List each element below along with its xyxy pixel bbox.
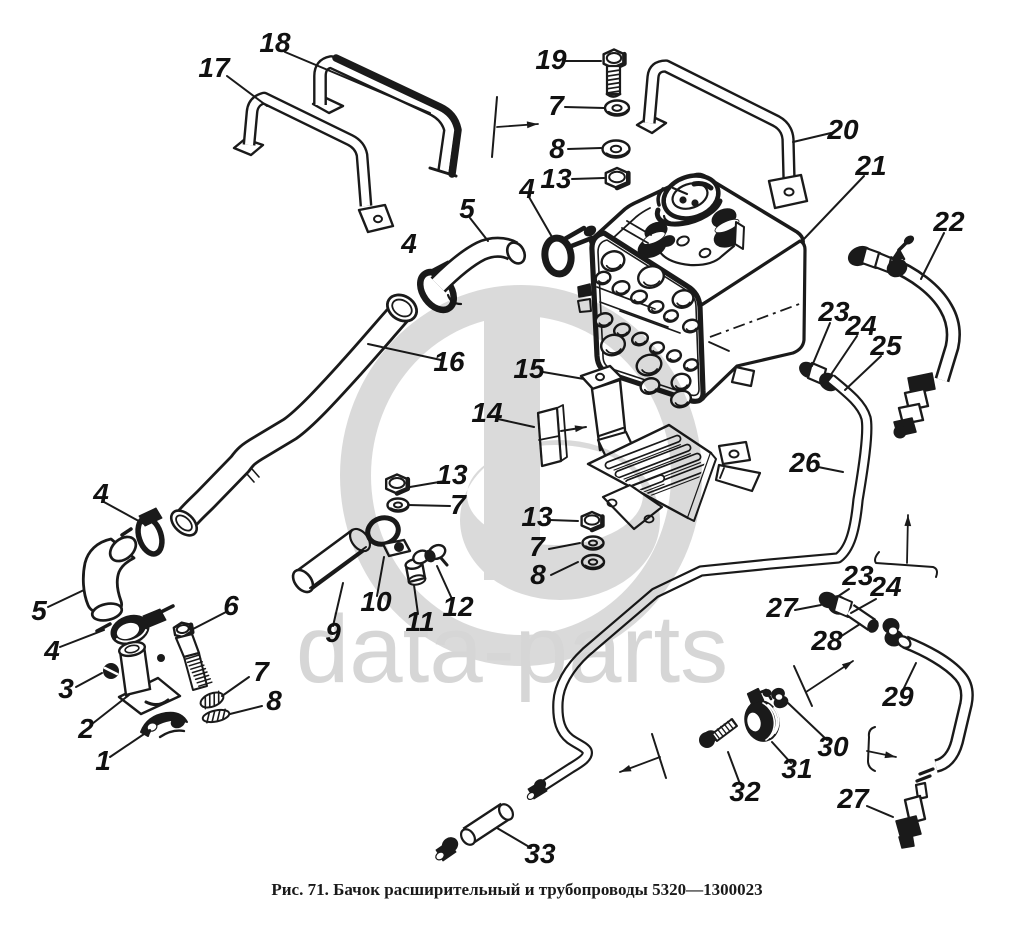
svg-text:data-parts: data-parts <box>296 596 728 703</box>
svg-text:13: 13 <box>436 459 468 490</box>
svg-text:4: 4 <box>400 228 417 259</box>
svg-text:27: 27 <box>836 783 870 814</box>
svg-text:5: 5 <box>31 595 47 626</box>
svg-text:1: 1 <box>95 745 111 776</box>
svg-text:5: 5 <box>459 193 475 224</box>
svg-text:3: 3 <box>58 673 74 704</box>
svg-text:2: 2 <box>77 713 94 744</box>
svg-text:7: 7 <box>548 90 565 121</box>
svg-text:8: 8 <box>549 133 565 164</box>
svg-text:8: 8 <box>266 685 282 716</box>
svg-text:4: 4 <box>92 478 109 509</box>
svg-text:22: 22 <box>932 206 965 237</box>
svg-text:26: 26 <box>788 447 821 478</box>
svg-text:27: 27 <box>765 592 799 623</box>
svg-text:Рис. 71. Бачок расширительный: Рис. 71. Бачок расширительный и трубопро… <box>271 880 762 899</box>
svg-text:4: 4 <box>43 635 60 666</box>
svg-text:19: 19 <box>535 44 567 75</box>
svg-text:29: 29 <box>881 681 914 712</box>
svg-text:30: 30 <box>817 731 849 762</box>
svg-text:31: 31 <box>781 753 812 784</box>
svg-text:32: 32 <box>729 776 761 807</box>
svg-text:13: 13 <box>540 163 572 194</box>
svg-text:16: 16 <box>433 346 465 377</box>
svg-text:20: 20 <box>826 114 859 145</box>
svg-text:28: 28 <box>810 625 843 656</box>
svg-text:18: 18 <box>259 27 291 58</box>
svg-text:24: 24 <box>869 571 902 602</box>
svg-text:21: 21 <box>854 150 886 181</box>
svg-text:4: 4 <box>518 173 535 204</box>
svg-text:7: 7 <box>253 656 270 687</box>
svg-text:6: 6 <box>223 590 239 621</box>
svg-text:17: 17 <box>198 52 231 83</box>
svg-text:23: 23 <box>841 560 874 591</box>
svg-text:33: 33 <box>524 838 556 869</box>
svg-text:25: 25 <box>869 330 902 361</box>
